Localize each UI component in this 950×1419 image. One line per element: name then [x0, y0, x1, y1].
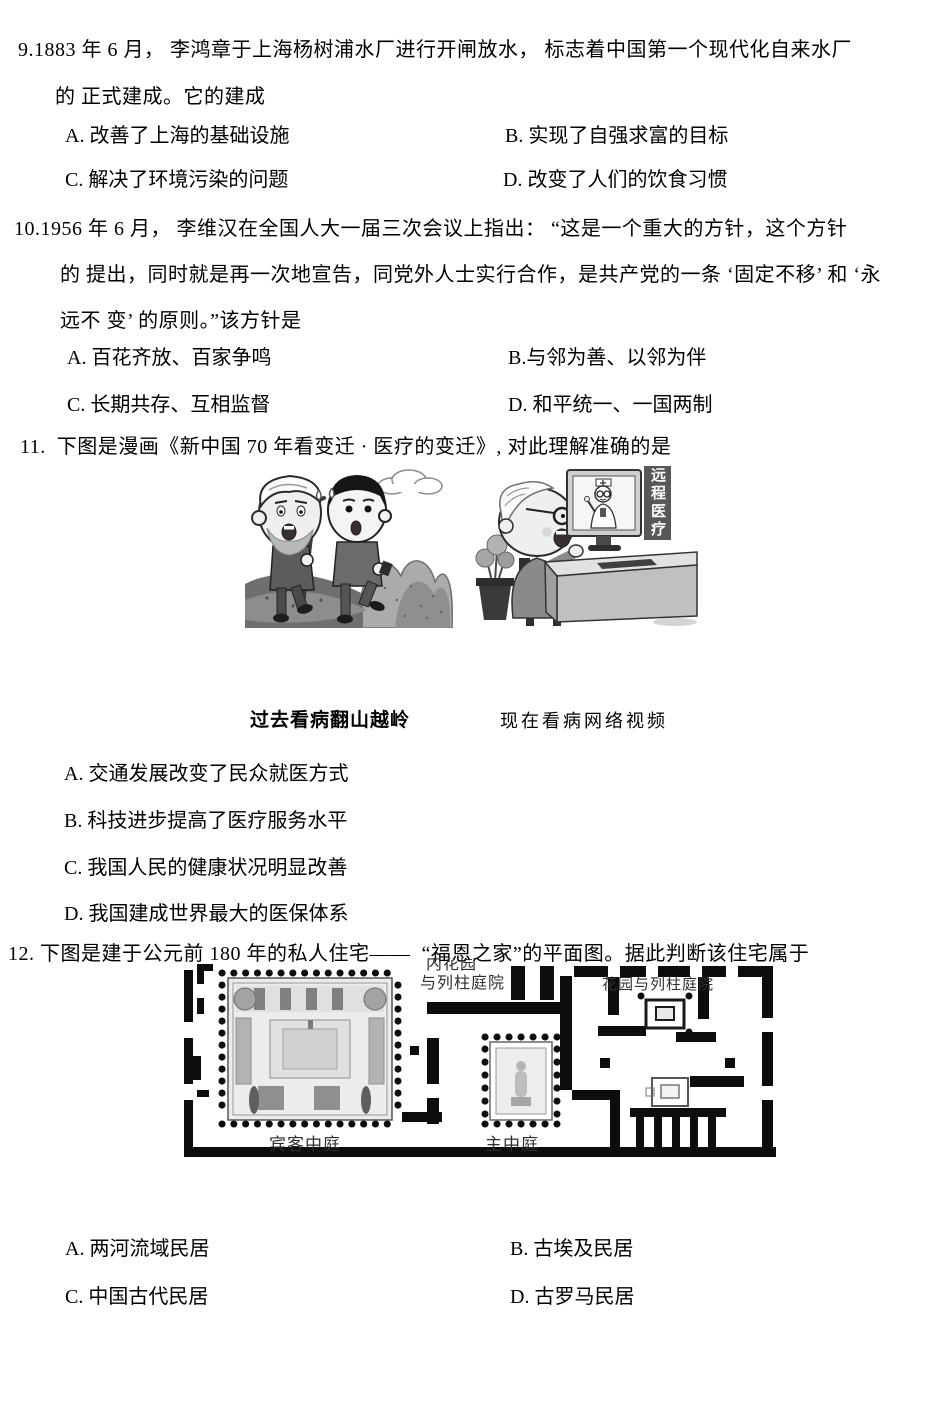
small-pool-lower	[646, 1078, 688, 1106]
q11-stem: 11. 下图是漫画《新中国 70 年看变迁 · 医疗的变迁》, 对此理解准确的是	[20, 430, 671, 459]
house-of-faun-floor-plan: 内花园 与列柱庭院 花园与列柱庭院 宾客中庭 主中庭	[170, 958, 790, 1165]
q10-stem-line3: 远不 变’ 的原则。”该方针是	[60, 304, 302, 333]
plan-label-guest-atrium: 宾客中庭	[269, 1130, 341, 1155]
q12-option-a: A. 两河流域民居	[65, 1232, 209, 1261]
q10-option-d: D. 和平统一、一国两制	[508, 388, 712, 417]
q9-option-d: D. 改变了人们的饮食习惯	[503, 163, 727, 192]
plan-label-peristyle-right: 花园与列柱庭院	[602, 973, 714, 994]
q11-option-c: C. 我国人民的健康状况明显改善	[64, 851, 347, 880]
q11-option-a: A. 交通发展改变了民众就医方式	[64, 757, 348, 786]
q10-option-b: B.与邻为善、以邻为伴	[508, 341, 706, 370]
main-atrium-statue	[490, 1042, 552, 1120]
q9-option-a: A. 改善了上海的基础设施	[65, 119, 289, 148]
q10-stem-line2: 的 提出，同时就是再一次地宣告，同党外人士实行合作，是共产党的一条 ‘固定不移’…	[60, 258, 881, 287]
plan-label-peristyle-left: 与列柱庭院	[420, 969, 505, 993]
q11-option-b: B. 科技进步提高了医疗服务水平	[64, 804, 347, 833]
small-peristyle-top	[638, 993, 693, 1036]
q10-option-a: A. 百花齐放、百家争鸣	[67, 341, 271, 370]
guest-atrium-garden	[228, 978, 392, 1120]
potted-plant	[476, 535, 514, 620]
monitor	[567, 470, 641, 551]
cartoon-caption-past: 过去看病翻山越岭	[250, 705, 410, 732]
cloud-shape	[378, 470, 442, 494]
q10-option-c: C. 长期共存、互相监督	[67, 388, 270, 417]
q12-option-d: D. 古罗马民居	[510, 1280, 634, 1309]
q9-option-b: B. 实现了自强求富的目标	[505, 119, 728, 148]
sweat-drop	[317, 490, 322, 500]
q9-option-c: C. 解决了环境污染的问题	[65, 163, 288, 192]
medical-change-cartoon: 远程医疗	[245, 466, 700, 628]
telemedicine-sign: 远程医疗	[644, 466, 671, 540]
q9-stem-line1: 9.1883 年 6 月， 李鸿章于上海杨树浦水厂进行开闸放水， 标志着中国第一…	[18, 33, 852, 62]
q9-stem-line2: 的 正式建成。它的建成	[55, 80, 266, 109]
sweat-drop	[330, 488, 335, 498]
plan-label-main-atrium: 主中庭	[485, 1130, 539, 1155]
q10-stem-line1: 10.1956 年 6 月， 李维汉在全国人大一届三次会议上指出： “这是一个重…	[14, 212, 847, 241]
q11-option-d: D. 我国建成世界最大的医保体系	[64, 897, 348, 926]
desk	[545, 552, 697, 626]
cartoon-drawing	[245, 466, 700, 628]
exam-page: 9.1883 年 6 月， 李鸿章于上海杨树浦水厂进行开闸放水， 标志着中国第一…	[0, 0, 950, 1419]
cartoon-caption-present: 现在看病网络视频	[500, 707, 668, 733]
q12-option-b: B. 古埃及民居	[510, 1232, 633, 1261]
q12-option-c: C. 中国古代民居	[65, 1280, 208, 1309]
